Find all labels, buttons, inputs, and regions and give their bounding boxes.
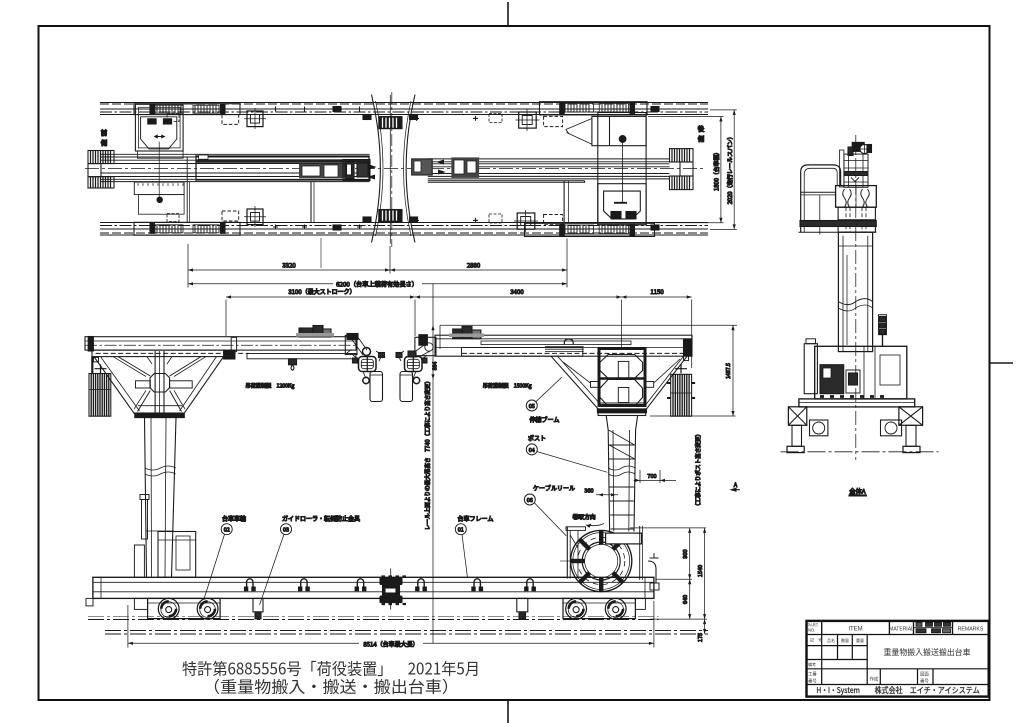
svg-text:06: 06: [527, 496, 533, 504]
svg-text:エイチ・アイシステム: エイチ・アイシステム: [910, 684, 980, 696]
svg-text:3400: 3400: [510, 287, 524, 296]
svg-text:ポスト: ポスト: [528, 433, 546, 442]
svg-text:640: 640: [681, 595, 689, 604]
svg-text:台車フレーム: 台車フレーム: [458, 514, 494, 523]
svg-text:REMARKS: REMARKS: [958, 627, 984, 633]
svg-text:MATERIAL: MATERIAL: [889, 627, 914, 633]
svg-text:数量: 数量: [841, 637, 849, 644]
svg-text:175: 175: [696, 633, 704, 642]
svg-text:1487.5: 1487.5: [725, 363, 732, 379]
svg-text:株式会社: 株式会社: [875, 684, 904, 696]
svg-text:1800（台車幅）: 1800（台車幅）: [712, 149, 721, 191]
svg-text:後側: 後側: [696, 123, 706, 143]
svg-text:台車車輪: 台車車輪: [222, 514, 246, 523]
svg-text:03: 03: [283, 526, 289, 534]
svg-text:360: 360: [584, 487, 593, 495]
svg-text:2880: 2880: [467, 261, 481, 270]
svg-text:05: 05: [529, 402, 535, 410]
svg-text:01: 01: [458, 526, 464, 534]
svg-text:ITEM: ITEM: [848, 627, 862, 633]
svg-text:レール上面よりの最大吊高さ 7740（工事により高さ変更）: レール上面よりの最大吊高さ 7740（工事により高さ変更）: [424, 378, 432, 530]
svg-text:重量: 重量: [856, 637, 864, 644]
svg-text:全体A: 全体A: [849, 487, 865, 496]
svg-text:ケーブルリール: ケーブルリール: [533, 484, 575, 493]
svg-text:3100（最大ストローク）: 3100（最大ストローク）: [288, 287, 355, 296]
svg-text:900: 900: [681, 549, 689, 558]
svg-text:工番: 工番: [808, 671, 817, 678]
svg-text:1150: 1150: [650, 287, 664, 296]
svg-text:02: 02: [224, 526, 230, 534]
svg-text:（工事によりポスト高さ変更）: （工事によりポスト高さ変更）: [694, 431, 702, 509]
svg-text:伸縮ブーム: 伸縮ブーム: [530, 415, 560, 424]
svg-text:04: 04: [529, 446, 535, 454]
svg-text:8514（台車最大長）: 8514（台車最大長）: [363, 640, 418, 649]
svg-text:2020（走行レールスパン）: 2020（走行レールスパン）: [725, 134, 734, 205]
svg-text:700: 700: [647, 472, 656, 480]
svg-text:ガイドローラ・転倒防止金具: ガイドローラ・転倒防止金具: [282, 514, 360, 523]
svg-text:NO.: NO.: [808, 628, 815, 633]
svg-text:1540: 1540: [696, 565, 704, 577]
svg-text:（重量物搬入・搬送・搬出台車）: （重量物搬入・搬送・搬出台車）: [203, 674, 459, 698]
svg-text:重量物搬入搬送搬出台車: 重量物搬入搬送搬出台車: [884, 646, 971, 658]
svg-text:巻取方向: 巻取方向: [573, 512, 596, 521]
svg-text:3320: 3320: [282, 261, 296, 270]
svg-text:備考: 備考: [808, 661, 816, 668]
svg-text:前側: 前側: [99, 127, 109, 147]
svg-text:品名: 品名: [827, 637, 835, 644]
svg-text:記 号: 記 号: [810, 637, 822, 644]
svg-text:H・I・System: H・I・System: [816, 684, 860, 696]
svg-text:図面: 図面: [920, 672, 929, 678]
svg-text:884: 884: [432, 362, 439, 371]
svg-text:吊荷重制限 1200Kg: 吊荷重制限 1200Kg: [245, 382, 294, 390]
svg-text:吊荷重制限 1500Kg: 吊荷重制限 1500Kg: [483, 382, 532, 390]
svg-text:作成: 作成: [870, 676, 879, 683]
